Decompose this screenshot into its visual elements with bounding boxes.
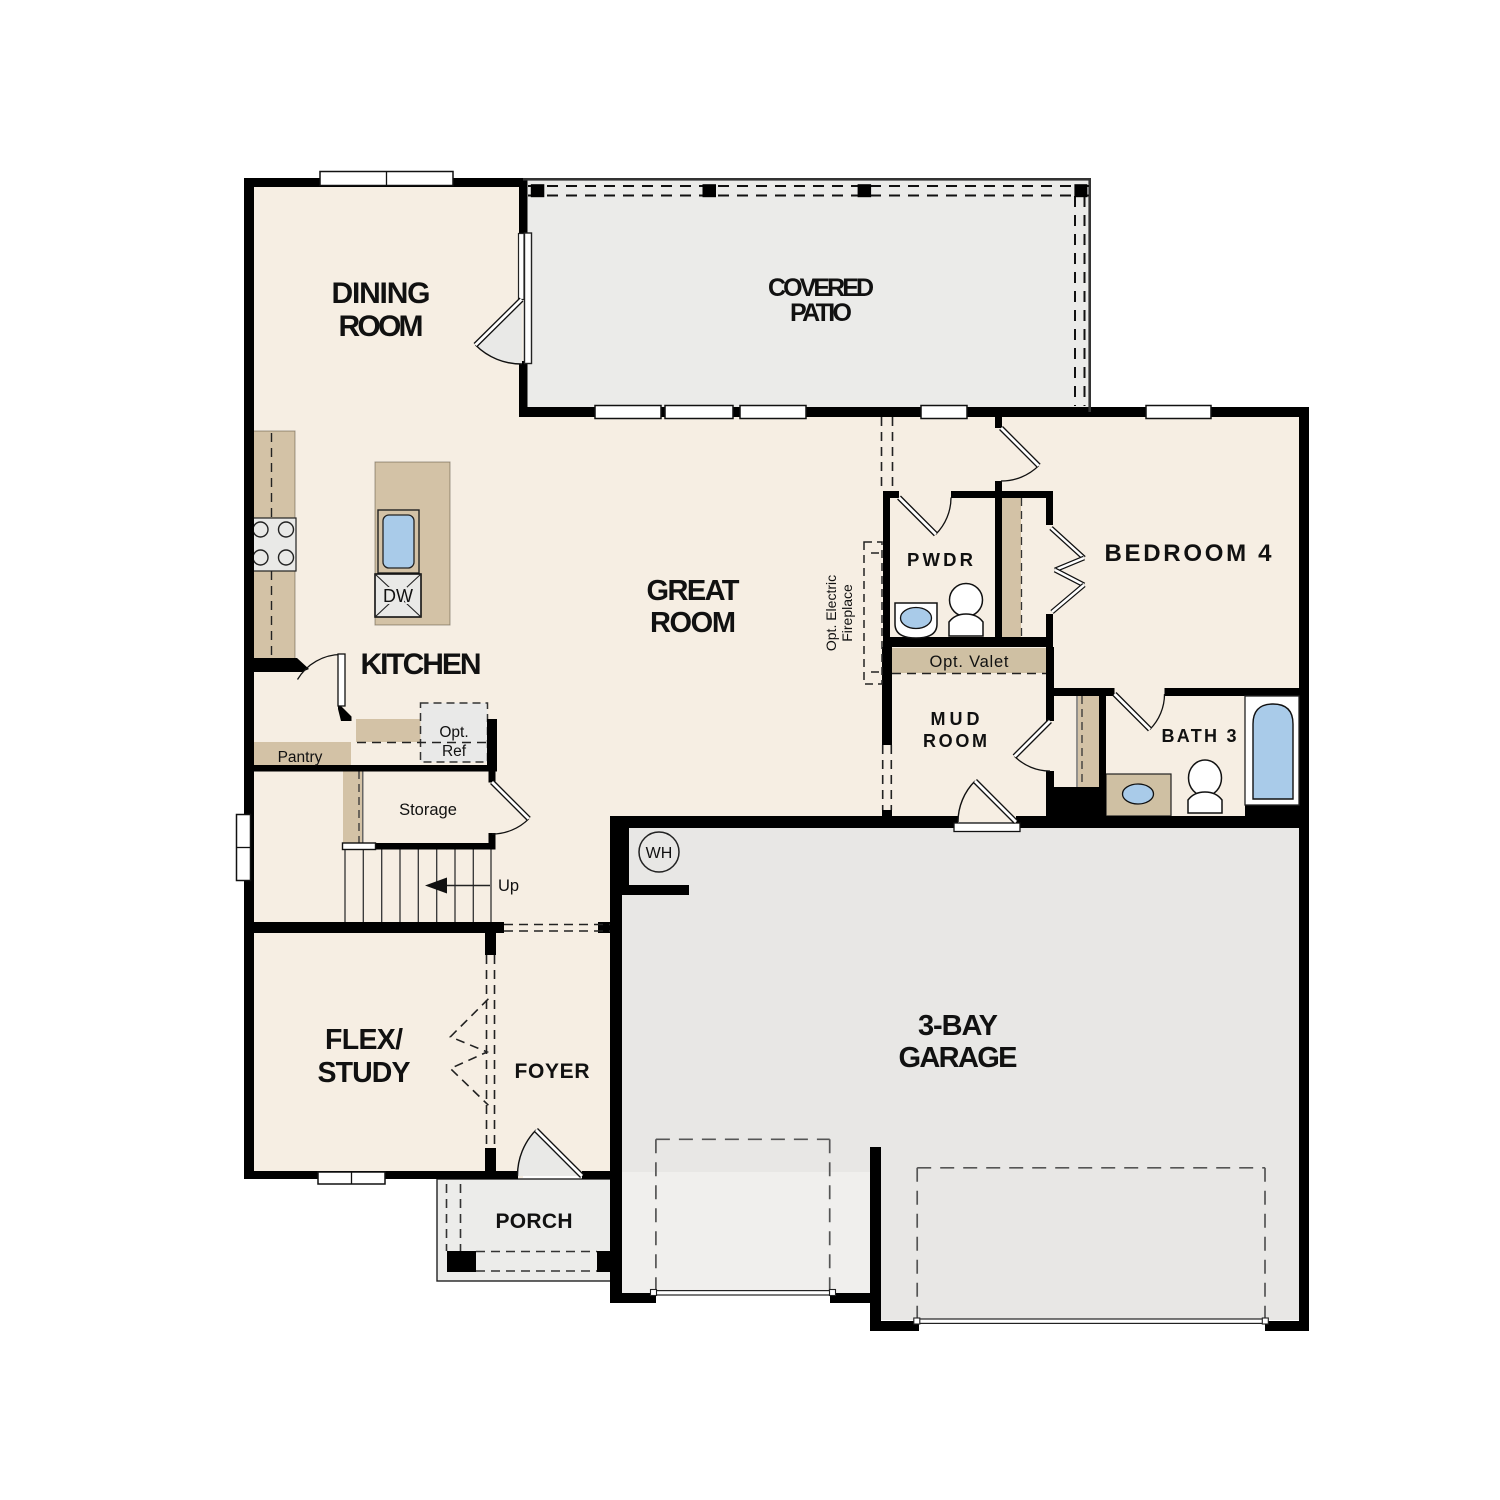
svg-text:ROOM: ROOM <box>923 731 987 751</box>
svg-text:FLEX/: FLEX/ <box>325 1024 403 1056</box>
svg-text:PORCH: PORCH <box>496 1210 573 1233</box>
svg-text:Opt. Valet: Opt. Valet <box>930 653 1009 671</box>
svg-text:Ref: Ref <box>442 743 467 760</box>
svg-text:STUDY: STUDY <box>318 1057 411 1089</box>
svg-text:ROOM: ROOM <box>650 607 736 639</box>
svg-text:3-BAY: 3-BAY <box>918 1010 998 1042</box>
svg-text:Storage: Storage <box>399 801 457 819</box>
svg-text:WH: WH <box>646 845 673 862</box>
svg-text:Pantry: Pantry <box>278 749 323 766</box>
svg-text:GREAT: GREAT <box>647 575 740 607</box>
svg-text:DW: DW <box>383 586 413 606</box>
svg-text:PATIO: PATIO <box>790 299 852 327</box>
svg-text:COVERED: COVERED <box>768 274 874 302</box>
svg-text:DINING: DINING <box>332 277 431 310</box>
svg-text:Up: Up <box>498 877 519 895</box>
svg-text:KITCHEN: KITCHEN <box>361 648 482 681</box>
svg-text:MUD: MUD <box>931 709 980 729</box>
svg-text:GARAGE: GARAGE <box>899 1042 1018 1074</box>
svg-text:Opt. Electric: Opt. Electric <box>823 575 839 651</box>
svg-text:Opt.: Opt. <box>439 724 468 741</box>
svg-text:ROOM: ROOM <box>339 310 424 343</box>
svg-text:Fireplace: Fireplace <box>839 584 855 642</box>
svg-text:FOYER: FOYER <box>515 1060 590 1083</box>
